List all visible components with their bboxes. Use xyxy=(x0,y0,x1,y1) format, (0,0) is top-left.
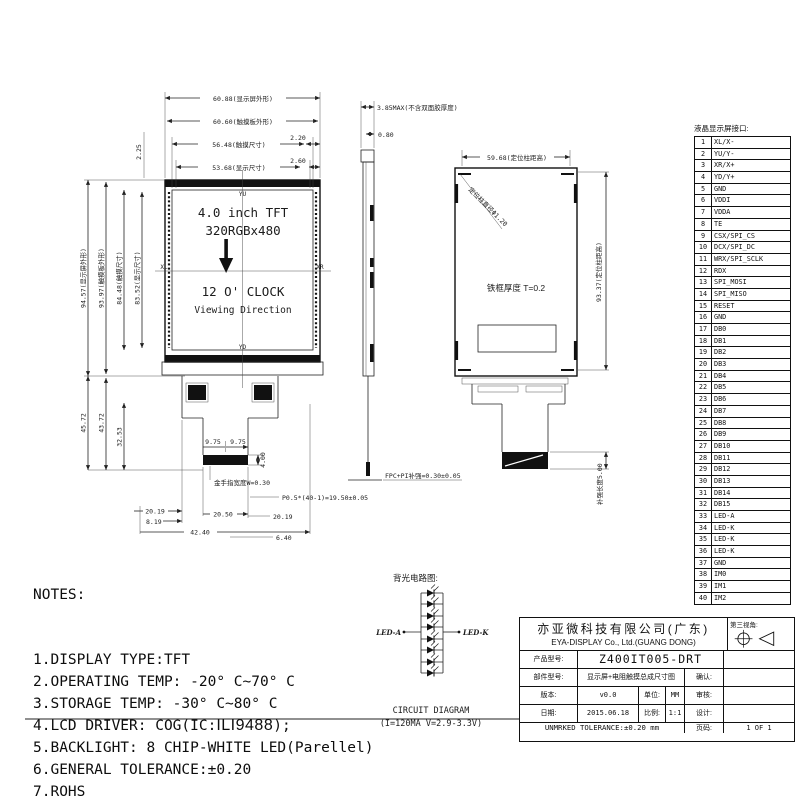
pin-number: 8 xyxy=(695,219,712,230)
review-signature-cell xyxy=(723,687,794,704)
pin-signal-name: DB6 xyxy=(712,394,790,405)
pin-number: 29 xyxy=(695,464,712,475)
frame-thickness-note: 铁框厚度 T=0.2 xyxy=(487,283,546,293)
pin-signal-name: DB8 xyxy=(712,418,790,429)
gold-fingers xyxy=(203,455,248,465)
viewing-direction-text: Viewing Direction xyxy=(194,305,291,316)
dim-lower-left-1: 45.72 xyxy=(80,413,88,433)
unit-label: 单位: xyxy=(638,687,665,704)
pin-table-rows: 1XL/X-2YU/Y-3XR/X+4YD/Y+5GND6VDDI7VDDA8T… xyxy=(694,136,791,605)
title-block: 亦亚微科技有限公司(广东) EYA-DISPLAY Co., Ltd.(GUAN… xyxy=(519,617,795,742)
dim-left-1: 94.57(显示屏外形) xyxy=(79,248,88,308)
dim-margin-1: 2.20 xyxy=(290,134,306,142)
clock-direction-text: 12 O' CLOCK xyxy=(202,284,285,299)
corner-label-xl: XL xyxy=(160,264,168,271)
pin-row: 13SPI_MOSI xyxy=(695,276,790,288)
viewing-direction-arrow-icon xyxy=(219,239,233,273)
pin-row: 35LED-K xyxy=(695,533,790,545)
pin-row: 15RESET xyxy=(695,300,790,312)
product-label: 产品型号: xyxy=(520,651,577,668)
dim-top-2: 60.60(触摸板外形) xyxy=(213,117,273,126)
product-extra-cell xyxy=(723,651,794,668)
pin-signal-name: DB11 xyxy=(712,453,790,464)
dim-gap: 0.80 xyxy=(378,131,394,139)
pin-number: 2 xyxy=(695,149,712,160)
notes-lines: 1.DISPLAY TYPE:TFT2.OPERATING TEMP: -20°… xyxy=(33,650,373,800)
pin-number: 27 xyxy=(695,441,712,452)
pin-signal-name: VDDA xyxy=(712,207,790,218)
page-value: 1 OF 1 xyxy=(723,723,794,733)
pin-signal-name: XL/X- xyxy=(712,137,790,148)
dim-819: 8.19 xyxy=(146,518,162,526)
pin-signal-name: TE xyxy=(712,219,790,230)
circuit-caption-1: CIRCUIT DIAGRAM xyxy=(393,706,470,716)
pin-number: 36 xyxy=(695,546,712,557)
tolerance-note: UNMRKED TOLERANCE:±0.20 mm xyxy=(520,723,684,733)
pin-number: 6 xyxy=(695,195,712,206)
design-signature-cell xyxy=(723,705,794,722)
pin-signal-name: SPI_MOSI xyxy=(712,277,790,288)
review-label: 审核: xyxy=(684,687,723,704)
dim-2019-right: 20.19 xyxy=(273,513,293,521)
led-diode-icon xyxy=(427,585,439,597)
pin-row: 33LED-A xyxy=(695,510,790,522)
led-diode-icon xyxy=(427,596,439,608)
led-diode-icon xyxy=(427,631,439,643)
dim-975-left: 9.75 xyxy=(205,438,221,446)
driver-ic-name: ILI9488 xyxy=(216,717,273,734)
dim-side-small: 2.25 xyxy=(135,144,143,160)
pin-number: 1 xyxy=(695,137,712,148)
pin-signal-name: YD/Y+ xyxy=(712,172,790,183)
pin-number: 21 xyxy=(695,371,712,382)
led-diode-icon xyxy=(427,654,439,666)
pin-number: 24 xyxy=(695,406,712,417)
part-value: 显示屏+电阻触摸总成尺寸图 xyxy=(577,669,684,686)
resolution-text: 320RGBx480 xyxy=(205,223,280,238)
pin-signal-name: SPI_MISO xyxy=(712,289,790,300)
page-label: 页码: xyxy=(684,723,723,733)
pin-table: 液晶显示屏接口: 1XL/X-2YU/Y-3XR/X+4YD/Y+5GND6VD… xyxy=(694,123,791,605)
pin-row: 21DB4 xyxy=(695,370,790,382)
pin-row: 27DB10 xyxy=(695,440,790,452)
pin-number: 28 xyxy=(695,453,712,464)
pin-number: 20 xyxy=(695,359,712,370)
pin-signal-name: GND xyxy=(712,558,790,569)
pin-row: 5GND xyxy=(695,183,790,195)
backlight-title: 背光电路图: xyxy=(393,573,438,583)
dim-lower-left-2: 43.72 xyxy=(98,413,106,433)
pin-row: 9CSX/SPI_CS xyxy=(695,230,790,242)
pin-row: 12RDX xyxy=(695,265,790,277)
pin-signal-name: VDDI xyxy=(712,195,790,206)
side-view: FPC+PI补强=0.30±0.05 3.85MAX(不含双面胶厚度) 0.80 xyxy=(348,101,462,480)
pin-signal-name: CSX/SPI_CS xyxy=(712,231,790,242)
corner-label-yu: YU xyxy=(239,191,247,198)
pin-signal-name: XR/X+ xyxy=(712,160,790,171)
pin-row: 29DB12 xyxy=(695,463,790,475)
led-diode-icon xyxy=(427,619,439,631)
dim-left-4: 83.52(显示尺寸) xyxy=(133,251,142,304)
pin-signal-name: DB9 xyxy=(712,429,790,440)
led-diode-icon xyxy=(427,608,439,620)
pin-signal-name: IM1 xyxy=(712,581,790,592)
note-line: 2.OPERATING TEMP: -20° C~70° C xyxy=(33,672,373,694)
pin-signal-name: LED-K xyxy=(712,523,790,534)
dim-top-3: 56.48(触摸尺寸) xyxy=(212,140,265,149)
pin-number: 9 xyxy=(695,231,712,242)
pin-signal-name: DB10 xyxy=(712,441,790,452)
pin-number: 23 xyxy=(695,394,712,405)
pin-row: 23DB6 xyxy=(695,393,790,405)
led-diode-icon xyxy=(427,642,439,654)
pin-number: 14 xyxy=(695,289,712,300)
part-label: 部件型号: xyxy=(520,669,577,686)
pin-number: 4 xyxy=(695,172,712,183)
dim-lower-left-3: 32.53 xyxy=(116,427,124,447)
corner-label-yd: YD xyxy=(239,344,247,351)
pin-row: 2YU/Y- xyxy=(695,148,790,160)
pin-row: 3XR/X+ xyxy=(695,159,790,171)
pin-signal-name: WRX/SPI_SCLK xyxy=(712,254,790,265)
pin-number: 31 xyxy=(695,488,712,499)
dim-975-right: 9.75 xyxy=(230,438,246,446)
pin-number: 18 xyxy=(695,336,712,347)
pin-number: 26 xyxy=(695,429,712,440)
pin-number: 22 xyxy=(695,382,712,393)
pin-signal-name: GND xyxy=(712,312,790,323)
date-label: 日期: xyxy=(520,705,577,722)
pin-row: 19DB2 xyxy=(695,346,790,358)
unit-value: MM xyxy=(665,687,684,704)
fpc-note: FPC+PI补强=0.30±0.05 xyxy=(385,471,461,480)
label-hatch-area xyxy=(478,325,556,352)
pin-signal-name: DB13 xyxy=(712,476,790,487)
pin-number: 16 xyxy=(695,312,712,323)
pin-number: 35 xyxy=(695,534,712,545)
scale-label: 比例: xyxy=(638,705,665,722)
pin-row: 30DB13 xyxy=(695,475,790,487)
note-line: 7.ROHS xyxy=(33,782,373,800)
pin-row: 18DB1 xyxy=(695,335,790,347)
note-line: 6.GENERAL TOLERANCE:±0.20 xyxy=(33,760,373,782)
pin-row: 32DB15 xyxy=(695,498,790,510)
pin-row: 36LED-K xyxy=(695,545,790,557)
note-line: 3.STORAGE TEMP: -30° C~80° C xyxy=(33,694,373,716)
pin-signal-name: DB4 xyxy=(712,371,790,382)
pin-row: 31DB14 xyxy=(695,487,790,499)
dim-post-span: 59.68(定位柱距高) xyxy=(487,153,547,162)
pin-row: 4YD/Y+ xyxy=(695,171,790,183)
note-line: 5.BACKLIGHT: 8 CHIP-WHITE LED(Parellel) xyxy=(33,738,373,760)
version-value: v0.0 xyxy=(577,687,638,704)
pin-number: 25 xyxy=(695,418,712,429)
pin-signal-name: DB7 xyxy=(712,406,790,417)
pin-row: 14SPI_MISO xyxy=(695,288,790,300)
circuit-caption-2: (I=120MA V=2.9-3.3V) xyxy=(380,719,482,729)
dim-post-height: 93.37(定位柱距高) xyxy=(594,242,603,302)
projection-angle-label: 第三视角: xyxy=(730,619,758,629)
pin-signal-name: DB1 xyxy=(712,336,790,347)
gold-finger-note: 金手指宽度W=0.30 xyxy=(214,478,270,487)
pin-row: 28DB11 xyxy=(695,452,790,464)
version-label: 版本: xyxy=(520,687,577,704)
pin-row: 7VDDA xyxy=(695,206,790,218)
pin-number: 10 xyxy=(695,242,712,253)
front-view: YU YD XL XR 4.0 inch TFT 320RGBx480 12 O… xyxy=(155,170,331,388)
pin-signal-name: DB14 xyxy=(712,488,790,499)
led-anode-label: LED-A xyxy=(375,628,401,637)
pin-number: 32 xyxy=(695,499,712,510)
pin-number: 15 xyxy=(695,301,712,312)
back-view: 59.68(定位柱距高) 定位柱直径Φ1.20 铁框厚度 T=0.2 93.37… xyxy=(455,150,609,505)
dim-thickness: 3.85MAX(不含双面胶厚度) xyxy=(377,103,458,112)
pin-row: 34LED-K xyxy=(695,522,790,534)
dim-2050: 20.50 xyxy=(213,511,233,519)
dim-left-3: 84.48(触摸尺寸) xyxy=(115,251,124,304)
backlight-circuit: 背光电路图: LED-A LED-K CIRCUIT DIAGRAM (I=12… xyxy=(375,573,489,729)
pin-number: 11 xyxy=(695,254,712,265)
pin-number: 34 xyxy=(695,523,712,534)
pin-row: 8TE xyxy=(695,218,790,230)
dim-400: 4.00 xyxy=(259,452,267,468)
led-cathode-label: LED-K xyxy=(462,628,489,637)
pin-signal-name: DB2 xyxy=(712,347,790,358)
company-name-cn: 亦亚微科技有限公司(广东) xyxy=(537,620,710,637)
design-label: 设计: xyxy=(684,705,723,722)
pin-signal-name: LED-K xyxy=(712,546,790,557)
company-name-en: EYA-DISPLAY Co., Ltd.(GUANG DONG) xyxy=(551,638,695,647)
notes-section: NOTES: 1.DISPLAY TYPE:TFT2.OPERATING TEM… xyxy=(33,541,373,800)
front-view-dimensions: 60.88(显示屏外形) 60.60(触摸板外形) 56.48(触摸尺寸) 2.… xyxy=(79,92,321,470)
pin-row: 25DB8 xyxy=(695,417,790,429)
drawing-sheet: YU YD XL XR 4.0 inch TFT 320RGBx480 12 O… xyxy=(0,0,800,800)
pin-number: 5 xyxy=(695,184,712,195)
pin-number: 39 xyxy=(695,581,712,592)
pin-number: 3 xyxy=(695,160,712,171)
confirm-label: 确认: xyxy=(684,669,723,686)
pin-row: 26DB9 xyxy=(695,428,790,440)
date-value: 2015.06.18 xyxy=(577,705,638,722)
pin-number: 30 xyxy=(695,476,712,487)
led-diode-icon xyxy=(427,665,439,677)
pin-table-title: 液晶显示屏接口: xyxy=(694,123,791,134)
backlight-connector-block xyxy=(188,385,206,400)
pin-row: 10DCX/SPI_DC xyxy=(695,241,790,253)
pin-row: 38IM0 xyxy=(695,568,790,580)
pin-row: 39IM1 xyxy=(695,580,790,592)
dim-4240: 42.40 xyxy=(190,529,210,537)
post-diameter-note: 定位柱直径Φ1.20 xyxy=(467,185,510,228)
pin-signal-name: RDX xyxy=(712,266,790,277)
pin-number: 13 xyxy=(695,277,712,288)
note-line: 1.DISPLAY TYPE:TFT xyxy=(33,650,373,672)
pin-number: 7 xyxy=(695,207,712,218)
pin-signal-name: DB0 xyxy=(712,324,790,335)
front-fpc-tail: 9.75 9.75 4.00 金手指宽度W=0.30 P0.5*(40-1)=1… xyxy=(134,376,368,542)
company-cell: 亦亚微科技有限公司(广东) EYA-DISPLAY Co., Ltd.(GUAN… xyxy=(520,618,727,650)
pin-row: 16GND xyxy=(695,311,790,323)
pin-number: 40 xyxy=(695,593,712,604)
note-line: 4.LCD DRIVER: COG(IC:ILI9488); xyxy=(33,715,373,738)
pin-signal-name: YU/Y- xyxy=(712,149,790,160)
dim-2019-left: 20.19 xyxy=(145,508,165,516)
pin-number: 37 xyxy=(695,558,712,569)
pin-signal-name: LED-A xyxy=(712,511,790,522)
pin-number: 19 xyxy=(695,347,712,358)
pin-number: 33 xyxy=(695,511,712,522)
scale-value: 1:1 xyxy=(665,705,684,722)
notes-header: NOTES: xyxy=(33,585,373,607)
pin-row: 20DB3 xyxy=(695,358,790,370)
pin-signal-name: DB5 xyxy=(712,382,790,393)
pin-signal-name: RESET xyxy=(712,301,790,312)
pin-row: 37GND xyxy=(695,557,790,569)
pin-signal-name: IM0 xyxy=(712,569,790,580)
product-value: Z400IT005-DRT xyxy=(577,651,723,668)
pin-row: 40IM2 xyxy=(695,592,790,604)
pin-row: 6VDDI xyxy=(695,194,790,206)
dim-margin-2: 2.60 xyxy=(290,157,306,165)
pin-signal-name: DCX/SPI_DC xyxy=(712,242,790,253)
pin-signal-name: GND xyxy=(712,184,790,195)
stiffener-length-note: 补强长度5.00 xyxy=(595,463,604,505)
pin-signal-name: DB12 xyxy=(712,464,790,475)
pin-row: 24DB7 xyxy=(695,405,790,417)
pin-row: 11WRX/SPI_SCLK xyxy=(695,253,790,265)
pin-number: 38 xyxy=(695,569,712,580)
projection-angle-cell: 第三视角: xyxy=(727,618,794,650)
pin-signal-name: LED-K xyxy=(712,534,790,545)
pin-number: 12 xyxy=(695,266,712,277)
corner-label-xr: XR xyxy=(316,264,324,271)
pin-row: 1XL/X- xyxy=(695,137,790,148)
confirm-signature-cell xyxy=(723,669,794,686)
pin-signal-name: IM2 xyxy=(712,593,790,604)
third-angle-symbol-icon xyxy=(730,629,782,649)
touch-connector-block xyxy=(254,385,272,400)
fpc-stiffener-end xyxy=(366,462,370,476)
pin-row: 22DB5 xyxy=(695,381,790,393)
pin-number: 17 xyxy=(695,324,712,335)
dim-left-2: 93.97(触摸板外形) xyxy=(97,248,106,308)
dim-top-4: 53.68(显示尺寸) xyxy=(212,163,265,172)
panel-size-text: 4.0 inch TFT xyxy=(198,205,289,220)
pin-signal-name: DB3 xyxy=(712,359,790,370)
pitch-note: P0.5*(40-1)=19.50±0.05 xyxy=(282,494,368,502)
pin-signal-name: DB15 xyxy=(712,499,790,510)
dim-top-1: 60.88(显示屏外形) xyxy=(213,94,273,103)
pin-row: 17DB0 xyxy=(695,323,790,335)
